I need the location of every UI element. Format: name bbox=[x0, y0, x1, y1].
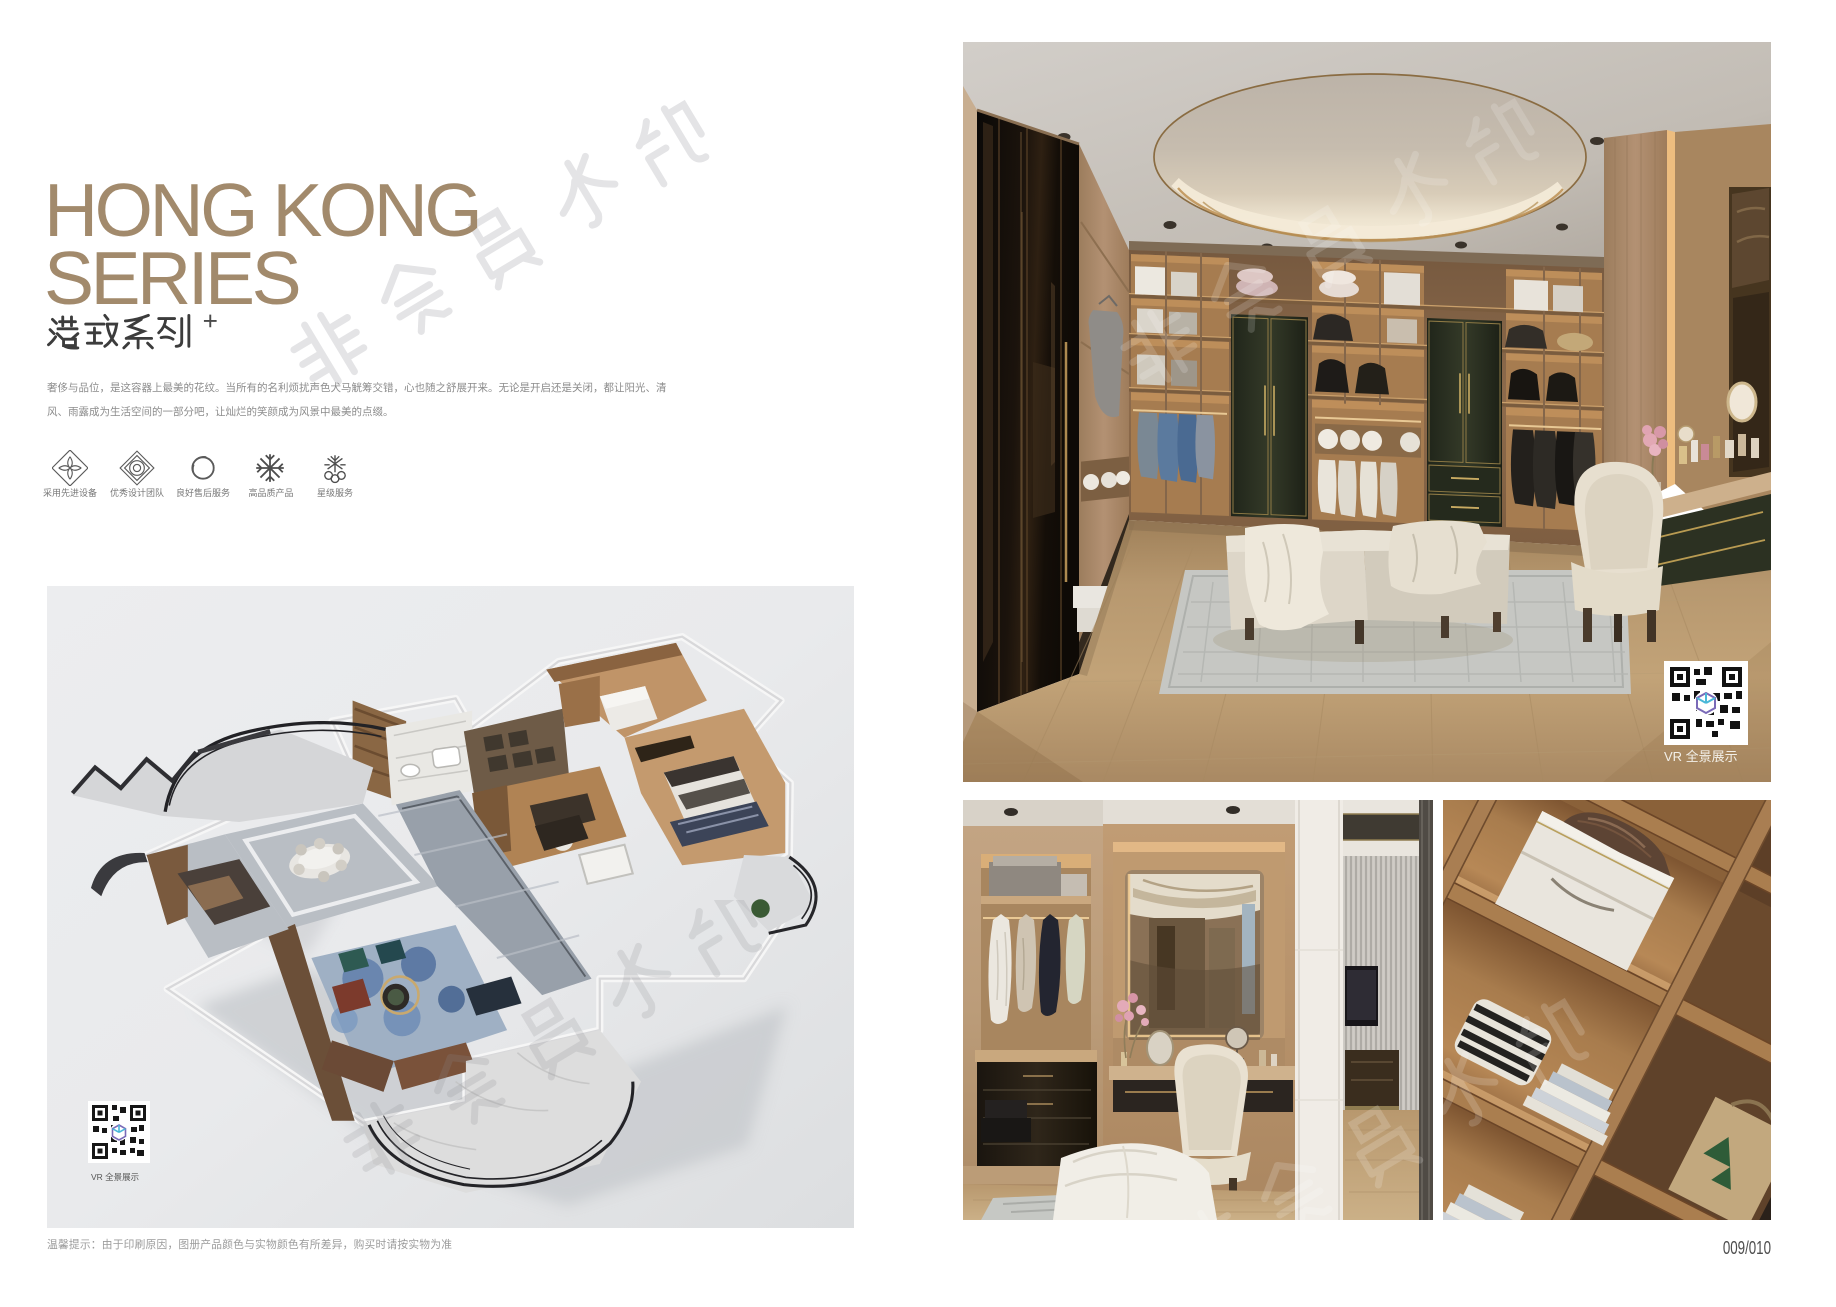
svg-text:VR 全景展示: VR 全景展示 bbox=[1664, 749, 1738, 764]
svg-text:VR 全景展示: VR 全景展示 bbox=[91, 1172, 139, 1182]
